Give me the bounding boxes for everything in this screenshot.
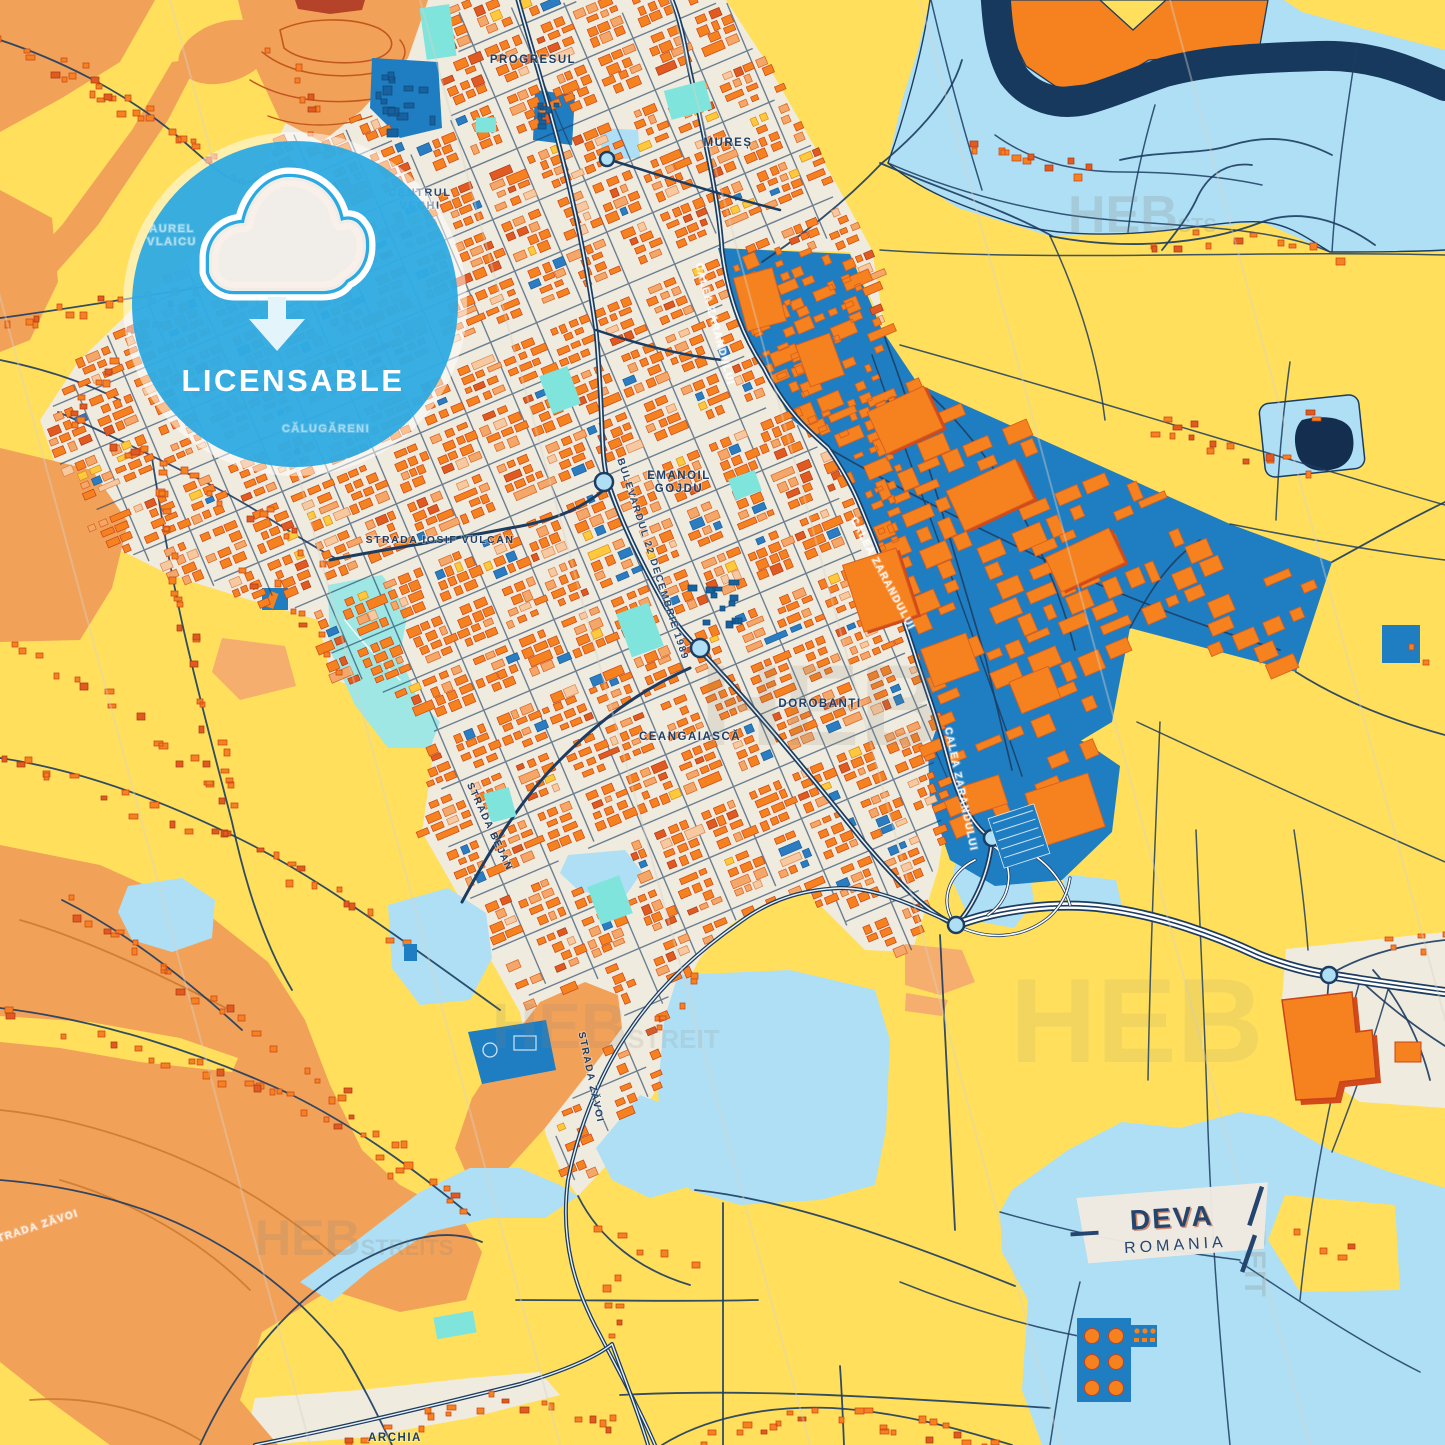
svg-text:DOROBANȚI: DOROBANȚI xyxy=(778,698,861,710)
svg-text:AUREL: AUREL xyxy=(149,223,194,235)
svg-text:LICENSABLE: LICENSABLE xyxy=(181,363,404,398)
svg-text:HEB: HEB xyxy=(1010,954,1263,1088)
svg-text:CEANGAIASCĂ: CEANGAIASCĂ xyxy=(639,730,741,743)
svg-text:ARCHIA: ARCHIA xyxy=(368,1432,422,1444)
svg-text:MUREȘ: MUREȘ xyxy=(703,137,752,149)
svg-text:DEVA: DEVA xyxy=(1129,1200,1214,1236)
svg-text:STRADA IOSIF VULCAN: STRADA IOSIF VULCAN xyxy=(366,534,515,546)
svg-text:CĂLUGĂRENI: CĂLUGĂRENI xyxy=(282,422,370,435)
svg-text:VLAICU: VLAICU xyxy=(147,236,197,248)
svg-text:GOJDU: GOJDU xyxy=(655,483,703,495)
svg-text:EMANOIL: EMANOIL xyxy=(647,470,711,482)
svg-text:PROGRESUL: PROGRESUL xyxy=(490,54,576,66)
